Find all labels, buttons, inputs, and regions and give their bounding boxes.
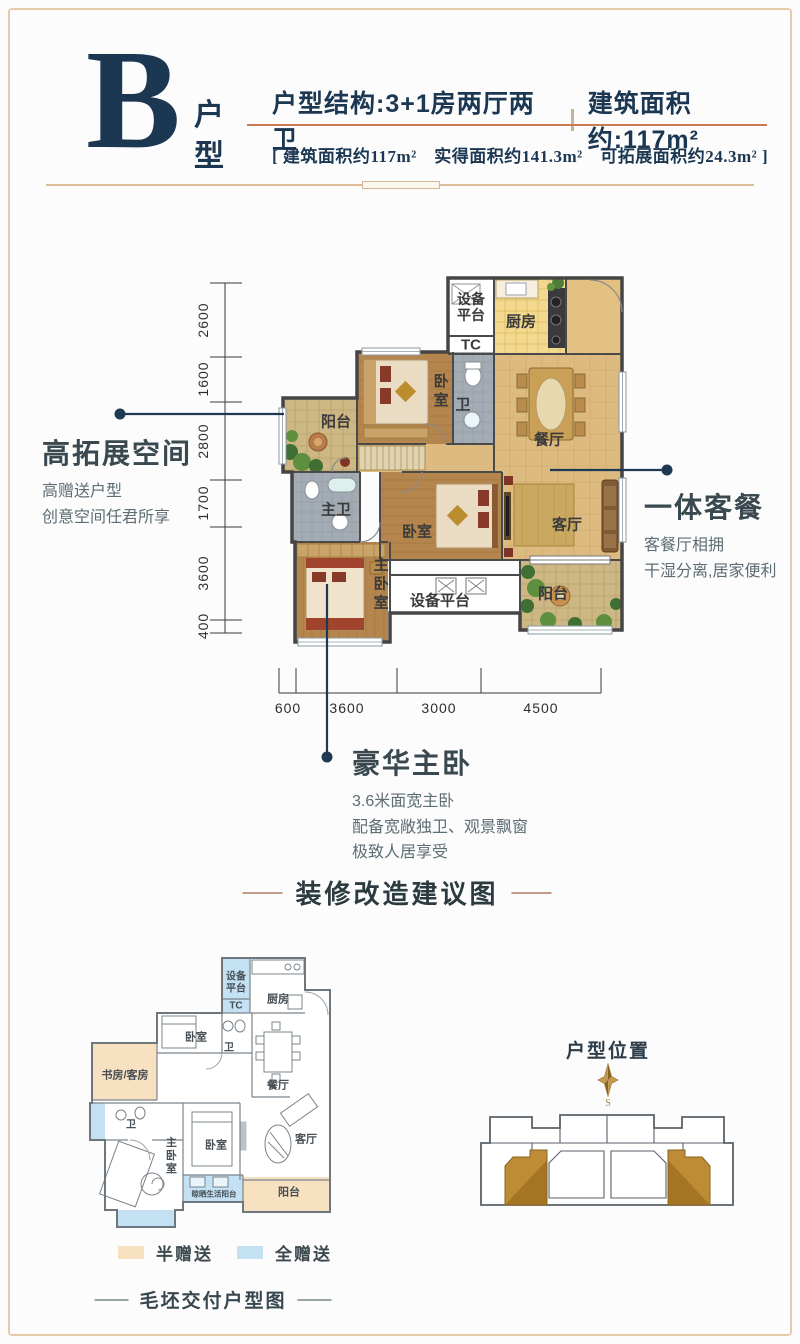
callout-living-dining: 一体客餐 客餐厅相拥 干湿分离,居家便利	[644, 486, 776, 584]
dim-left-1600: 1600	[195, 361, 211, 396]
room-label-dining: 餐厅	[534, 431, 564, 448]
location-title: 户型位置	[566, 1036, 650, 1063]
reno-label-bath-bottom: 卫	[126, 1119, 136, 1131]
unit-letter-text: B	[86, 20, 181, 178]
unit-letter: B	[86, 28, 181, 170]
reno-label-bedroom-mid: 卧室	[205, 1140, 227, 1153]
renovation-title-text: 装修改造建议图	[295, 874, 498, 911]
dim-left-3600: 3600	[195, 555, 211, 590]
header-underline	[247, 124, 767, 126]
callout-expand-title: 高拓展空间	[42, 432, 192, 472]
gold-divider-ornament	[362, 181, 440, 189]
callout-master-desc: 3.6米面宽主卧 配备宽敞独卫、观景飘窗 极致人居享受	[352, 789, 528, 866]
highlighted-unit-left	[505, 1150, 547, 1205]
room-label-equipment-platform: 设备 平台	[457, 291, 485, 323]
reno-label-living: 客厅	[295, 1134, 317, 1147]
dim-bottom-3000: 3000	[421, 700, 456, 716]
highlighted-unit-right	[668, 1150, 710, 1205]
reno-label-equipment-platform: 设备 平台	[226, 972, 246, 995]
compass-south-label: S	[605, 1098, 611, 1109]
unit-type-label: 户 型	[194, 96, 225, 177]
room-label-living: 客厅	[552, 516, 582, 533]
reno-label-master-bedroom: 主卧室	[164, 1137, 177, 1176]
footer-dash-left	[94, 1299, 128, 1301]
dim-bottom-3600: 3600	[329, 700, 364, 716]
dim-left-1700: 1700	[195, 485, 211, 520]
renovation-section-title: 装修改造建议图	[242, 874, 551, 911]
callout-expand-desc: 高赠送户型 创意空间任君所享	[42, 479, 192, 530]
dim-bottom-600: 600	[275, 700, 301, 716]
area-detail-line: [ 建筑面积约117m² 实得面积约141.3m² 可拓展面积约24.3m² ]	[272, 142, 768, 167]
dim-left-400: 400	[195, 613, 211, 639]
dim-left-2600: 2600	[195, 302, 211, 337]
room-label-bedroom-mid: 卧室	[402, 523, 432, 540]
legend-full-gift: 全赠送	[237, 1240, 332, 1265]
reno-label-dining: 餐厅	[267, 1080, 289, 1093]
brochure-page: B 户 型 户型结构:3+1房两厅两卫 建筑面积约:117m² [ 建筑面积约1…	[0, 0, 800, 1344]
dim-left-2800: 2800	[195, 423, 211, 458]
room-label-bath-top: 卫	[455, 396, 470, 413]
reno-label-kitchen: 厨房	[267, 994, 289, 1007]
callout-master: 豪华主卧 3.6米面宽主卧 配备宽敞独卫、观景飘窗 极致人居享受	[352, 742, 528, 866]
reno-label-study: 书房/客房	[101, 1070, 148, 1083]
reno-label-balcony: 阳台	[278, 1187, 300, 1200]
callout-master-title: 豪华主卧	[352, 742, 528, 782]
room-label-bedroom-top: 卧室	[431, 373, 448, 411]
title-dash-right	[512, 892, 552, 894]
header-separator	[571, 109, 574, 131]
room-label-equipment-platform-bottom: 设备平台	[410, 592, 470, 609]
room-label-master-bath: 主卫	[321, 501, 351, 518]
footer-title-text: 毛坯交付户型图	[139, 1286, 286, 1313]
full-gift-label: 全赠送	[275, 1240, 332, 1265]
room-label-balcony-left: 阳台	[321, 413, 351, 430]
room-label-balcony-right: 阳台	[538, 585, 568, 602]
building-location-diagram	[481, 1115, 733, 1205]
linework-canvas	[0, 0, 800, 1344]
half-gift-swatch	[118, 1246, 144, 1259]
footer-dash-right	[298, 1299, 332, 1301]
footer-title: 毛坯交付户型图	[94, 1286, 331, 1313]
reno-label-bath-top: 卫	[224, 1042, 234, 1054]
reno-label-laundry-balcony: 晾晒生活阳台	[192, 1191, 237, 1200]
legend-half-gift: 半赠送	[118, 1240, 213, 1265]
dim-bottom-4500: 4500	[523, 700, 558, 716]
compass-icon	[598, 1064, 618, 1096]
room-label-master-bedroom: 主卧室	[371, 557, 388, 614]
reno-label-bedroom-top: 卧室	[185, 1032, 207, 1045]
callout-living-dining-title: 一体客餐	[644, 486, 776, 526]
half-gift-label: 半赠送	[156, 1240, 213, 1265]
main-floor-plan	[279, 277, 626, 646]
callout-expand: 高拓展空间 高赠送户型 创意空间任君所享	[42, 432, 192, 530]
title-dash-left	[242, 892, 282, 894]
callout-living-dining-desc: 客餐厅相拥 干湿分离,居家便利	[644, 533, 776, 584]
room-label-tc: TC	[461, 336, 481, 353]
room-label-kitchen: 厨房	[506, 313, 536, 330]
full-gift-swatch	[237, 1246, 263, 1259]
reno-label-tc: TC	[229, 1000, 242, 1012]
